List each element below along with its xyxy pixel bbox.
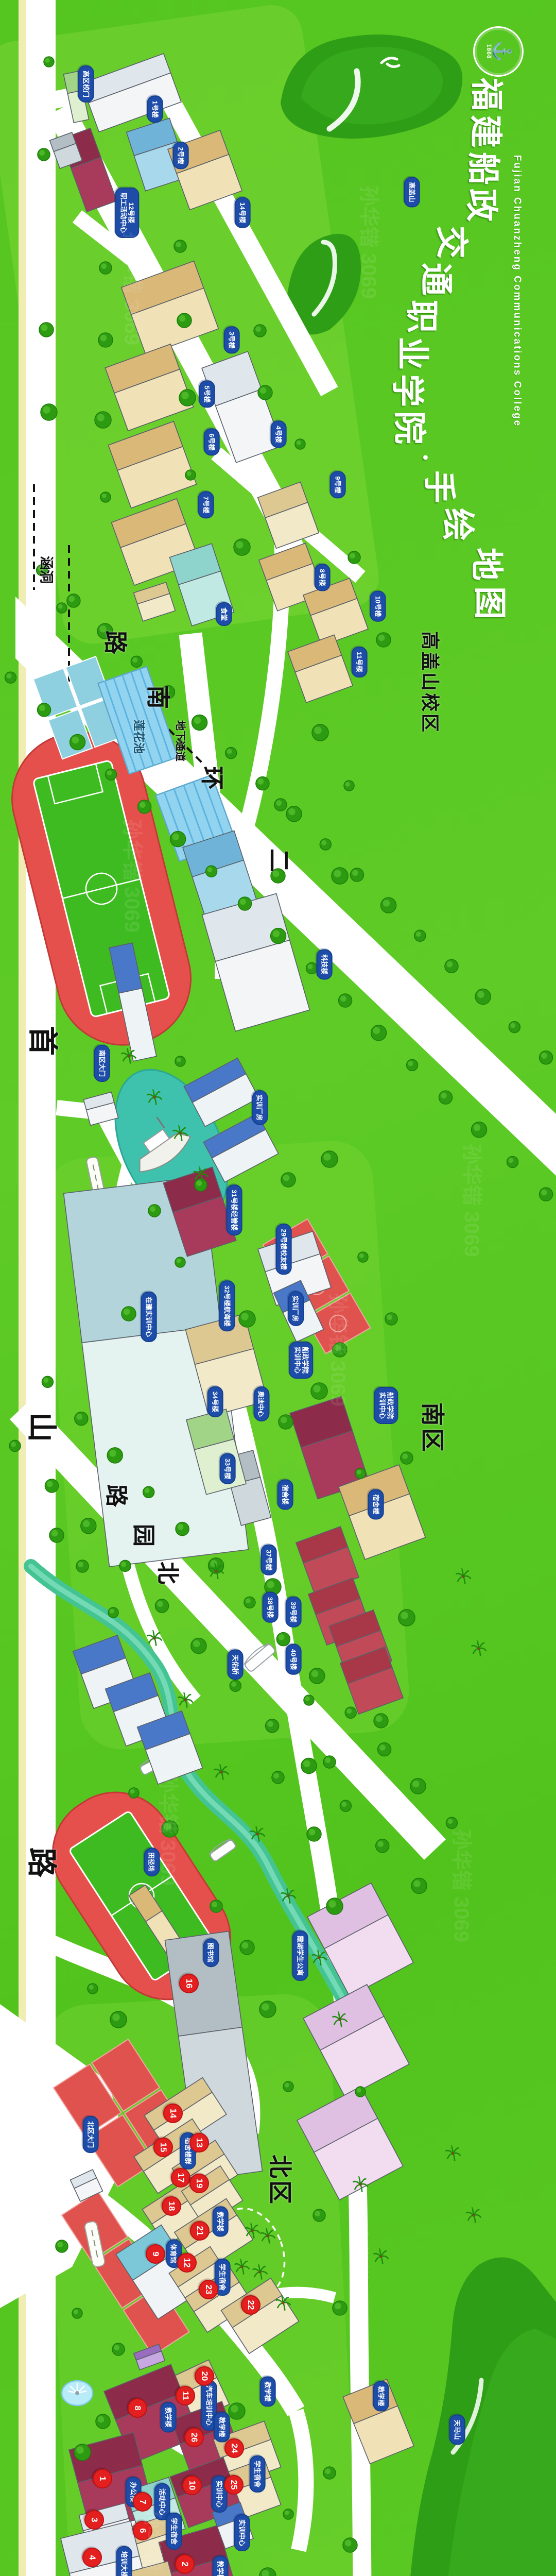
tree-icon [5,672,16,683]
tianma-mountain [407,2258,556,2576]
tree-icon [323,1756,336,1768]
tree-icon [439,1091,453,1104]
tree-icon [75,1412,88,1426]
tree-icon [274,799,287,811]
gaogai-mountain [281,35,462,139]
tree-icon [254,325,266,337]
tree-icon [276,1633,290,1646]
tree-icon [283,2081,293,2092]
tree-icon [57,603,67,613]
palm-tree-icon [456,1569,471,1584]
tree-icon [355,2087,366,2097]
tree-icon [376,633,391,647]
tree-icon [106,769,117,780]
tree-icon [540,1051,553,1064]
tree-icon [239,1311,255,1327]
tree-icon [192,715,207,730]
tree-icon [56,2240,68,2252]
tree-icon [411,1878,427,1893]
tree-icon [446,1817,457,1828]
tree-icon [266,1719,279,1733]
tree-icon [374,1714,388,1728]
tree-icon [401,1452,413,1464]
tree-icon [304,1695,314,1705]
tree-icon [98,333,113,347]
palm-tree-icon [466,2208,481,2223]
building-roof [165,1931,242,2037]
tree-icon [312,724,328,741]
tree-icon [95,412,111,428]
tree-icon [119,1560,131,1571]
tree-icon [286,806,302,822]
tree-icon [45,1479,58,1493]
tree-icon [258,385,272,400]
tree-icon [339,994,352,1007]
tree-icon [42,1376,53,1387]
tree-icon [398,1609,415,1626]
tree-icon [355,1468,366,1479]
tree-icon [138,800,151,814]
tree-icon [37,565,48,576]
tree-icon [358,1252,368,1262]
tree-icon [311,1383,327,1399]
fountain [62,2381,93,2405]
tree-icon [88,1984,98,1994]
tree-icon [41,404,57,420]
map-canvas [0,0,556,2576]
tree-icon [507,1156,518,1167]
tree-icon [110,2011,127,2028]
tree-icon [99,262,112,274]
tree-icon [378,1743,391,1756]
tree-icon [259,2001,276,2018]
tree-icon [344,781,354,791]
tree-icon [225,748,237,759]
tree-icon [230,1680,241,1691]
tree-icon [345,1707,356,1718]
tree-icon [129,1788,139,1798]
tree-icon [238,897,252,910]
tree-icon [407,1059,418,1071]
palm-tree-icon [374,2249,389,2264]
tree-icon [313,2209,325,2222]
tree-icon [195,1179,207,1191]
tree-icon [174,240,186,252]
tree-icon [295,439,305,449]
building-block [288,635,353,703]
palm-tree-icon [214,1765,229,1780]
tree-icon [49,1528,64,1543]
tree-icon [97,623,113,639]
tree-icon [301,1758,317,1774]
tree-icon [107,1448,123,1463]
tree-icon [143,1486,154,1498]
tree-icon [371,1025,387,1041]
tree-icon [279,1415,293,1429]
tree-icon [343,2538,357,2552]
campus-map: { "meta": { "map_name": "福建船政交通职业学院·手绘地图… [0,0,556,2576]
tree-icon [321,1151,338,1167]
tree-icon [410,1778,426,1794]
tree-icon [179,389,196,406]
palm-tree-icon [446,2146,461,2161]
tree-icon [112,2343,125,2355]
tree-icon [240,1940,254,1955]
tree-icon [350,868,363,882]
tree-icon [177,313,192,328]
tree-icon [81,1518,96,1534]
tree-icon [39,323,54,337]
tree-icon [265,1579,281,1595]
tree-icon [121,1307,136,1321]
tree-icon [100,492,111,502]
tree-icon [108,1607,118,1618]
tree-icon [206,866,217,877]
tree-icon [74,2444,91,2461]
tree-icon [185,470,196,480]
tree-icon [131,656,142,667]
tree-icon [38,703,51,717]
tree-icon [272,1771,284,1784]
tree-icon [283,2509,293,2519]
tree-icon [332,868,348,884]
tree-icon [348,551,360,564]
tree-icon [445,959,458,973]
tree-icon [340,1800,351,1811]
tree-icon [67,594,80,607]
tree-icon [333,2301,347,2315]
tree-icon [176,1522,189,1536]
tree-icon [540,1188,553,1201]
tree-icon [148,1205,161,1217]
tree-icon [256,777,269,790]
tree-icon [309,1668,325,1684]
tree-icon [162,1821,178,1837]
tree-icon [244,1597,255,1608]
tree-icon [320,839,331,850]
tree-icon [38,148,50,161]
tree-icon [323,2467,336,2479]
tree-icon [229,2403,245,2419]
tree-icon [170,832,186,847]
tree-icon [175,1056,185,1066]
tree-icon [271,869,285,883]
tree-icon [9,1440,21,1451]
tree-icon [234,539,250,555]
tree-icon [210,1900,222,1912]
tree-icon [307,1827,321,1841]
tree-icon [155,1599,169,1613]
tree-icon [472,1122,487,1138]
tree-icon [70,735,85,750]
tree-icon [306,962,318,974]
tree-icon [175,1257,185,1267]
tree-icon [191,1638,206,1654]
tree-icon [76,1560,89,1572]
tree-icon [326,1898,343,1914]
tree-icon [376,1839,389,1853]
tree-icon [385,1313,397,1325]
tree-icon [96,2414,110,2429]
tree-icon [161,685,175,699]
tree-icon [414,930,426,941]
tree-icon [281,1173,296,1187]
tree-icon [44,57,54,67]
tree-icon [271,928,286,944]
tree-icon [509,1022,520,1033]
tree-icon [333,1343,347,1357]
tree-icon [72,2308,82,2318]
tree-icon [381,897,396,913]
palm-tree-icon [472,1641,486,1656]
tree-icon [475,989,491,1005]
